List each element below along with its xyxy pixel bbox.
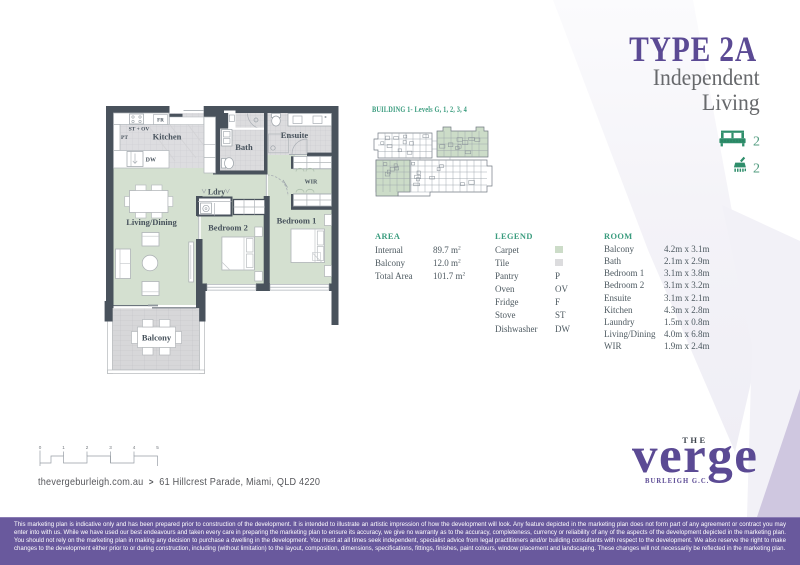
svg-text:Bedroom 2: Bedroom 2 [208,223,248,233]
svg-text:2: 2 [753,135,760,150]
svg-text:DW: DW [146,157,156,163]
svg-text:Bath: Bath [235,142,253,152]
svg-text:1: 1 [62,445,65,450]
svg-text:Balcony: Balcony [142,332,172,342]
svg-text:Kitchen: Kitchen [153,132,182,142]
svg-text:5: 5 [156,445,159,450]
svg-text:2: 2 [753,162,760,177]
svg-text:3: 3 [109,445,112,450]
svg-text:0: 0 [39,445,42,450]
svg-text:Ldry: Ldry [208,187,225,196]
svg-text:Bedroom 1: Bedroom 1 [277,216,317,226]
svg-text:Ensuite: Ensuite [281,130,309,140]
svg-text:2: 2 [86,445,89,450]
svg-text:ST + OV: ST + OV [129,127,150,133]
svg-text:FR: FR [157,118,164,123]
svg-text:PT: PT [121,135,128,141]
svg-text:WIR: WIR [305,180,318,186]
svg-text:4: 4 [133,445,136,450]
svg-text:Living/Dining: Living/Dining [126,217,177,227]
